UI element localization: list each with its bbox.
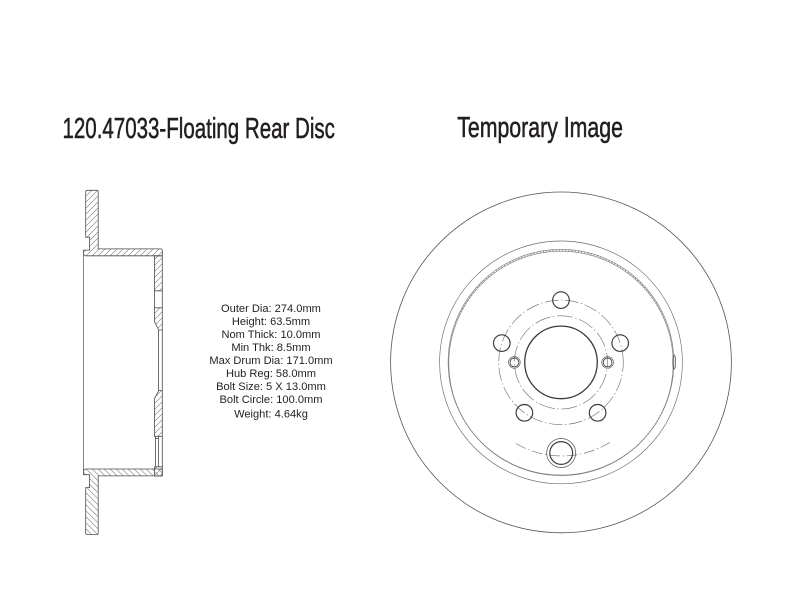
- svg-text:120.47033-Floating Rear Disc: 120.47033-Floating Rear Disc: [63, 113, 335, 145]
- svg-text:Min Thk: 8.5mm: Min Thk: 8.5mm: [231, 342, 310, 354]
- svg-text:Nom Thick: 10.0mm: Nom Thick: 10.0mm: [221, 329, 320, 341]
- svg-text:Bolt Circle: 100.0mm: Bolt Circle: 100.0mm: [220, 394, 323, 406]
- svg-text:Temporary Image: Temporary Image: [457, 112, 623, 144]
- svg-text:Height: 63.5mm: Height: 63.5mm: [232, 316, 310, 328]
- svg-text:Bolt Size: 5 X 13.0mm: Bolt Size: 5 X 13.0mm: [216, 381, 326, 393]
- svg-text:Outer Dia: 274.0mm: Outer Dia: 274.0mm: [221, 303, 321, 315]
- svg-text:Hub Reg: 58.0mm: Hub Reg: 58.0mm: [226, 368, 316, 380]
- svg-text:Weight: 4.64kg: Weight: 4.64kg: [234, 409, 308, 421]
- svg-text:Max Drum Dia: 171.0mm: Max Drum Dia: 171.0mm: [209, 355, 332, 367]
